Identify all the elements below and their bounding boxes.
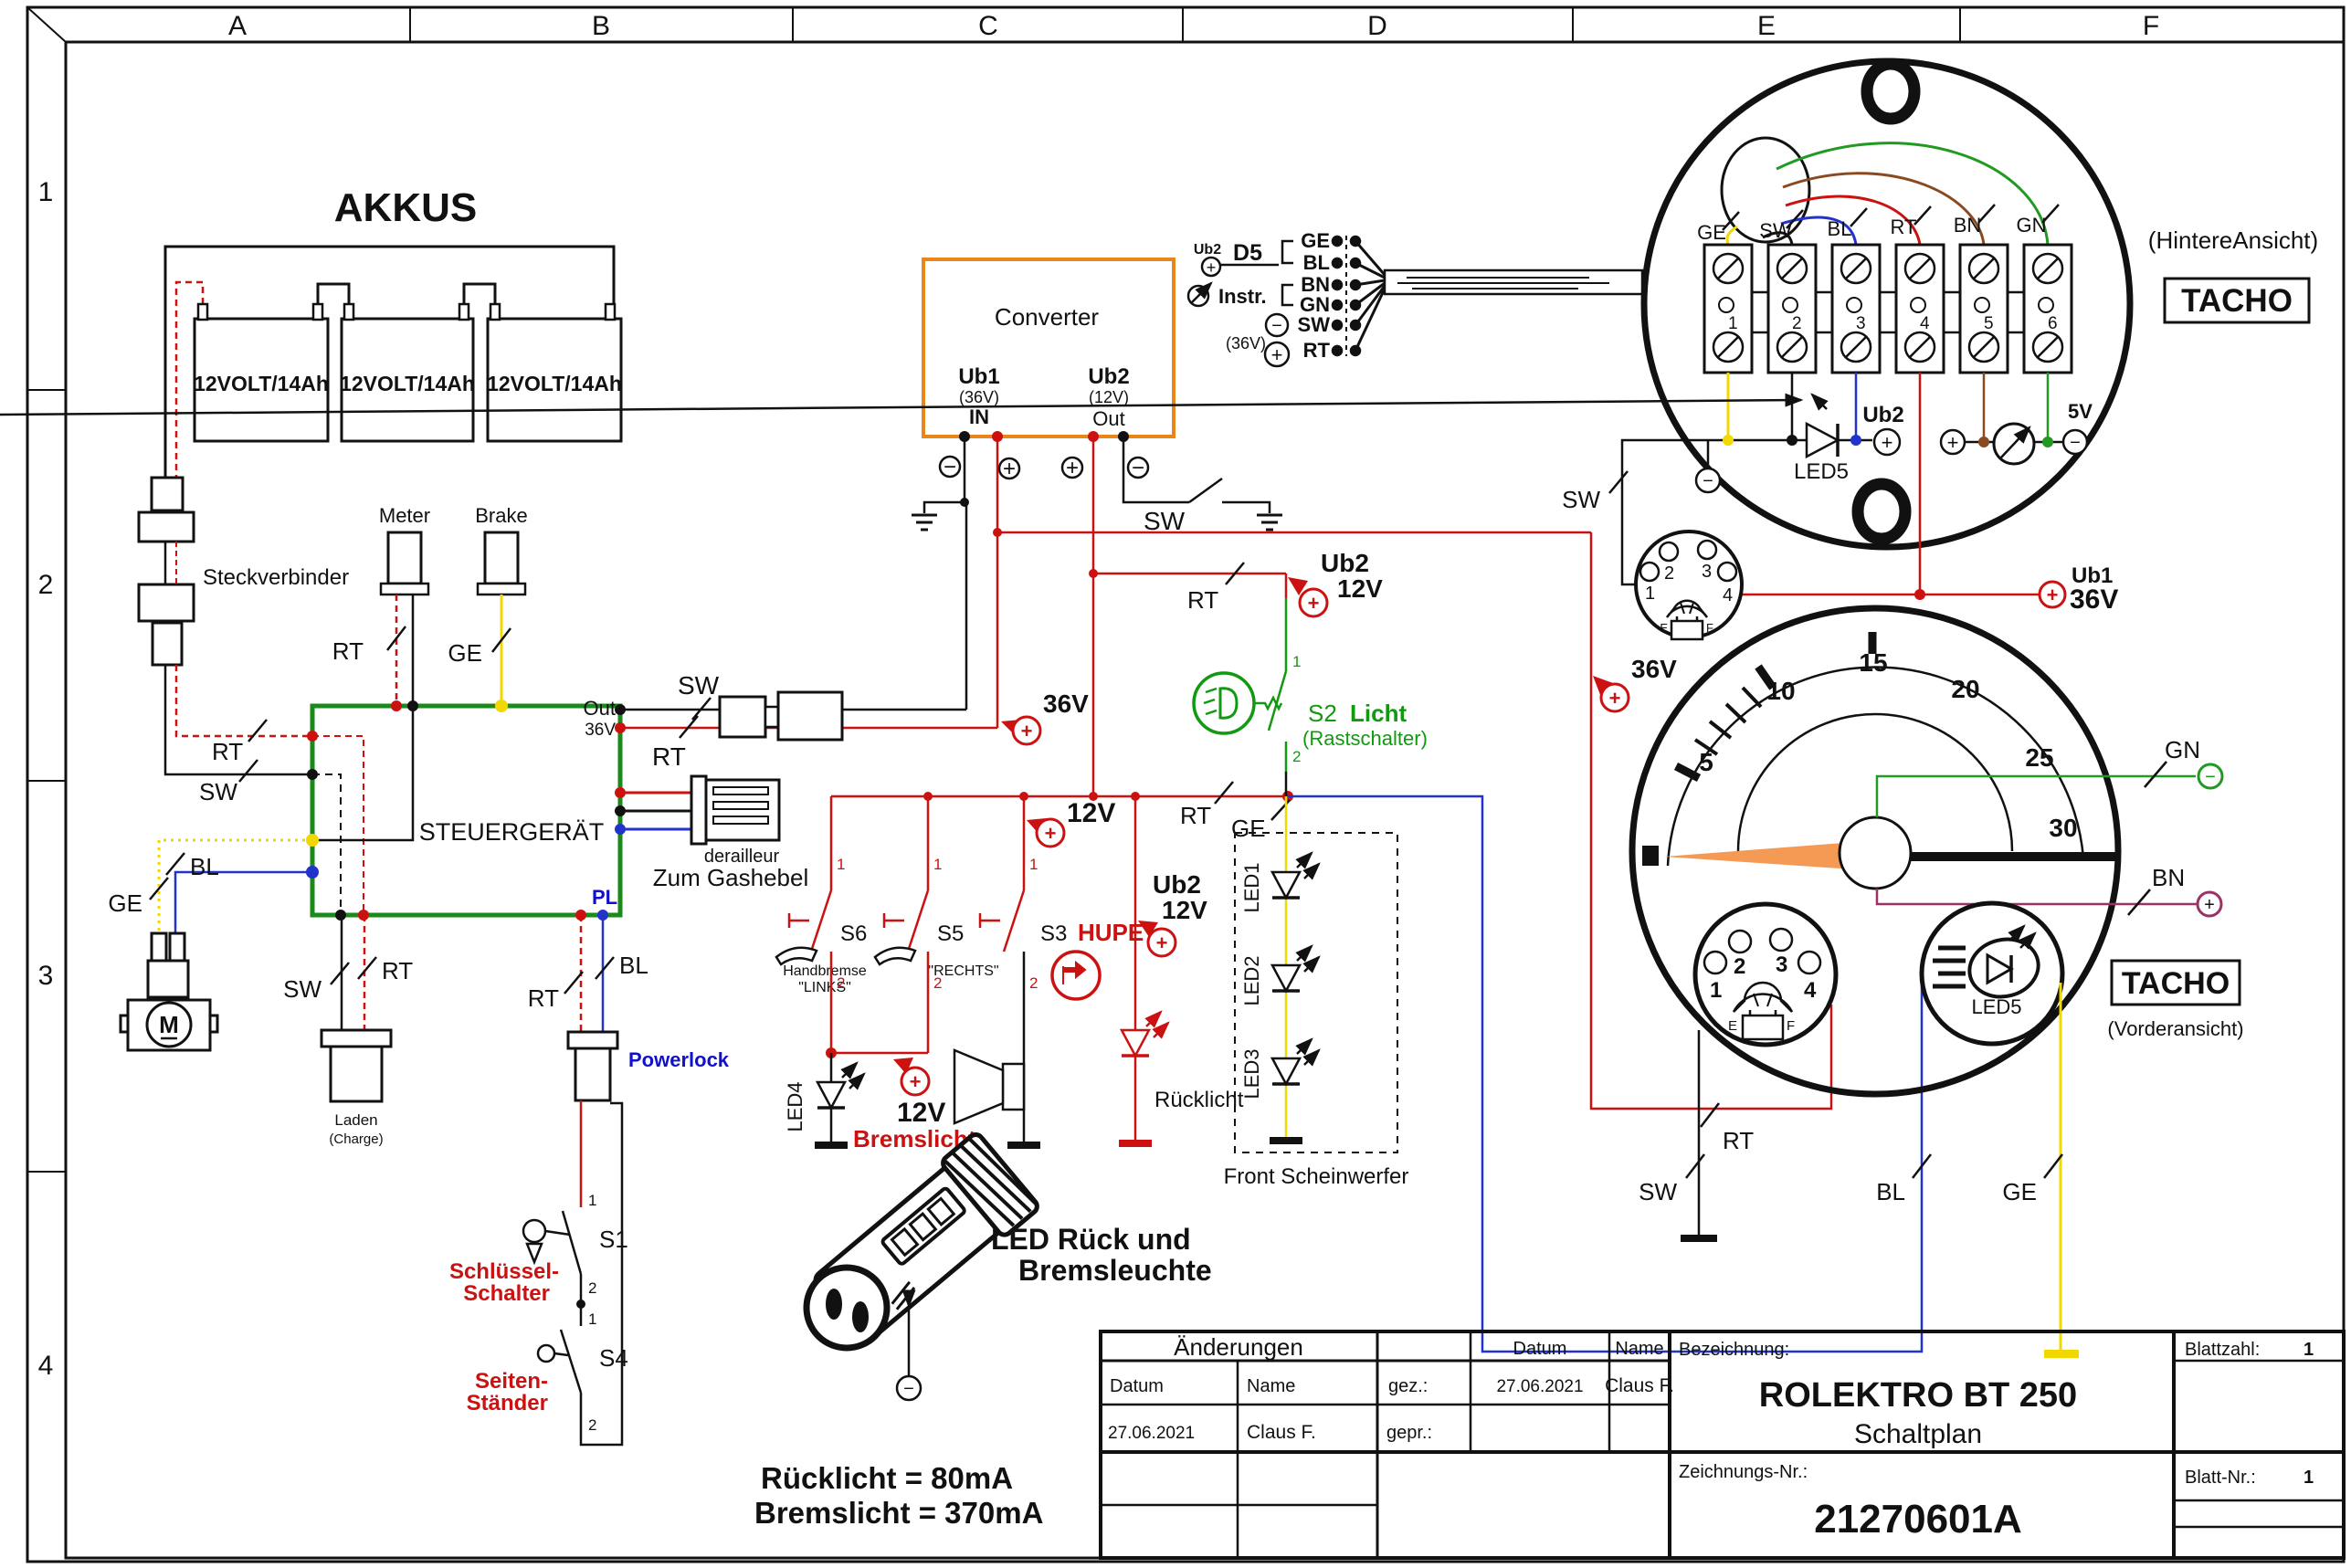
sw-label: SW — [1759, 219, 1792, 242]
bl-label: BL — [1876, 1178, 1905, 1205]
meter-label: Meter — [379, 504, 430, 527]
pin-2: 2 — [837, 974, 845, 992]
powerlock-branch: RT BL Powerlock 1 S1 Schlüssel- Schalter… — [449, 915, 730, 1445]
steckverbinder-label: Steckverbinder — [203, 565, 349, 590]
battery-label: 12VOLT/14Ah — [194, 372, 329, 395]
led4-label: LED4 — [784, 1081, 807, 1131]
led5-front: LED5 — [1922, 903, 2062, 1044]
col-e: E — [1757, 11, 1776, 41]
gn-label: GN — [2017, 214, 2047, 237]
terminal-3: 3 — [1856, 314, 1866, 333]
cable-plug-front: 1 2 3 4 E F — [1695, 904, 1836, 1045]
pin-1: 1 — [1029, 856, 1038, 873]
ge-label: GE — [108, 889, 142, 917]
terminal-blocks: 1 2 3 4 5 6 — [1704, 245, 2072, 373]
bremslicht-ma: Bremslicht = 370mA — [754, 1496, 1043, 1530]
bl-label: BL — [190, 853, 219, 880]
s1-label: S1 — [599, 1226, 628, 1253]
derailleur-connector: derailleur Zum Gashebel — [620, 776, 808, 891]
rt-label: RT — [212, 738, 243, 765]
bl-route — [1288, 796, 1922, 1352]
p36-label: (36V) — [1226, 334, 1266, 353]
speed-10: 10 — [1766, 677, 1795, 705]
s1-name-1: Schlüssel- — [449, 1259, 559, 1284]
battery-label: 12VOLT/14Ah — [340, 372, 475, 395]
svg-text:+: + — [1882, 431, 1893, 454]
pin-1: 1 — [588, 1192, 596, 1209]
in-label: IN — [969, 405, 989, 428]
datum-col: Datum — [1110, 1376, 1164, 1396]
sheet-frame — [27, 7, 2344, 1562]
pin-4: 4 — [1804, 978, 1817, 1003]
pl-label: PL — [592, 886, 617, 909]
terminal-6: 6 — [2048, 314, 2058, 333]
front-view-label: (Vorderansicht) — [2107, 1017, 2243, 1040]
terminal-2: 2 — [1792, 314, 1802, 333]
znr-label: Zeichnungs-Nr.: — [1679, 1462, 1808, 1482]
steuergeraet-label: STEUERGERÄT — [419, 818, 605, 846]
motor-m: M — [159, 1011, 179, 1038]
12v-marker-1: + 12V — [1027, 798, 1115, 847]
sw-label: SW — [678, 671, 720, 700]
pin-2: 2 — [588, 1279, 596, 1297]
pin-3: 3 — [1776, 952, 1787, 977]
sw-label: SW — [1562, 486, 1600, 513]
bn-label: BN — [1954, 214, 1982, 237]
v36-label: 36V — [1043, 689, 1089, 718]
svg-text:+: + — [1947, 431, 1959, 454]
col-a: A — [228, 11, 247, 41]
title-block: Änderungen Datum Name Datum Name gez.: 2… — [1101, 1331, 2344, 1558]
rt-label: RT — [1891, 216, 1917, 238]
ge-label: GE — [1697, 221, 1726, 244]
col-b: B — [592, 11, 610, 41]
brake-label: Brake — [475, 504, 527, 527]
rt-label: RT — [652, 742, 686, 771]
switch-s6: 1 S6 Handbremse "LINKS" 2 — [776, 796, 867, 1053]
ub2-label: Ub2 — [1194, 242, 1221, 258]
ub2-12v-marker-s2: + Ub2 12V — [1288, 549, 1383, 616]
svg-text:−: − — [2070, 433, 2081, 453]
gez-date: 27.06.2021 — [1496, 1377, 1583, 1396]
ub2-12v-marker-rueck: + Ub2 12V — [1138, 870, 1207, 956]
s6-label: S6 — [840, 921, 867, 946]
gepr-label: gepr.: — [1386, 1423, 1432, 1443]
charge-label: (Charge) — [329, 1131, 383, 1147]
tacho-front-view: 5 10 15 20 25 30 − GN + BN 1 2 — [1632, 608, 2244, 1358]
akkus-title: AKKUS — [334, 185, 477, 230]
fuel-f: F — [1706, 621, 1713, 635]
sw-label: SW — [283, 975, 322, 1003]
akkus-section: AKKUS 12VOLT/14Ah 12VOLT/14Ah 12VOLT/14A… — [165, 185, 622, 479]
rear-view-label: (HintereAnsicht) — [2148, 226, 2318, 254]
svg-text:+: + — [1156, 931, 1168, 954]
svg-text:+: + — [1066, 456, 1079, 480]
svg-text:+: + — [1609, 687, 1621, 710]
col-f: F — [2143, 11, 2159, 41]
speed-15: 15 — [1859, 648, 1887, 677]
rt-label: RT — [1187, 586, 1218, 614]
change-date: 27.06.2021 — [1108, 1424, 1195, 1443]
rt-label: RT — [1723, 1127, 1754, 1154]
svg-text:−: − — [2205, 767, 2216, 787]
bezeichnung-label: Bezeichnung: — [1679, 1340, 1789, 1360]
aenderungen-header: Änderungen — [1174, 1333, 1303, 1361]
pin-2: 2 — [588, 1416, 596, 1434]
meter: Meter RT — [332, 504, 430, 706]
fuel-e: E — [1728, 1018, 1737, 1034]
36v-marker-2: + 36V — [1593, 655, 1677, 711]
led2-label: LED2 — [1240, 955, 1263, 1005]
svg-text:+: + — [2204, 895, 2215, 915]
ruecklicht: + Ub2 12V Rücklicht — [1119, 796, 1244, 1147]
svg-text:+: + — [2047, 584, 2059, 606]
row-2: 2 — [38, 570, 54, 600]
ruecklicht-ma: Rücklicht = 80mA — [761, 1461, 1013, 1495]
v5-label: 5V — [2068, 400, 2093, 423]
motor: GE BL M — [108, 840, 312, 1050]
s5-label: S5 — [937, 921, 964, 946]
speed-5: 5 — [1699, 748, 1713, 776]
terminal-1: 1 — [1728, 314, 1738, 333]
ub2-label: Ub2 — [1088, 364, 1129, 389]
steuergeraet: STEUERGERÄT PL Out 36V — [306, 697, 626, 921]
pin-1: 1 — [588, 1310, 596, 1328]
pin-1: 1 — [1645, 584, 1655, 604]
svg-text:−: − — [903, 1379, 914, 1399]
pin-4: 4 — [1723, 585, 1733, 605]
s4-label: S4 — [599, 1344, 628, 1372]
ge-label: GE — [1301, 229, 1330, 252]
licht-label: Licht — [1350, 700, 1407, 727]
terminal-4: 4 — [1920, 314, 1930, 333]
row-1: 1 — [38, 177, 54, 207]
name-col: Name — [1247, 1376, 1295, 1396]
pin-2: 2 — [933, 974, 942, 992]
blattzahl-label: Blattzahl: — [2185, 1340, 2260, 1360]
ge-label: GE — [1231, 815, 1266, 842]
controller-pins — [306, 700, 626, 921]
led3-label: LED3 — [1240, 1048, 1263, 1099]
led-note-2: Bremsleuchte — [1018, 1254, 1212, 1287]
battery-2: 12VOLT/14Ah — [340, 304, 475, 441]
ground-right — [1257, 515, 1282, 530]
doc-subtitle: Schaltplan — [1854, 1419, 1982, 1449]
name-header: Name — [1615, 1339, 1663, 1359]
instr-label: Instr. — [1218, 285, 1267, 308]
36v-marker-1: + 36V — [1001, 689, 1089, 744]
s4-name-1: Seiten- — [475, 1369, 548, 1394]
drawing-number: 21270601A — [1814, 1497, 2022, 1542]
ruecklicht-label: Rücklicht — [1154, 1088, 1244, 1112]
bl-label: BL — [619, 952, 648, 979]
battery-3: 12VOLT/14Ah — [487, 304, 622, 441]
led1: LED1 — [1240, 853, 1319, 913]
svg-text:−: − — [1703, 471, 1713, 491]
ge-label: GE — [2002, 1178, 2037, 1205]
sw-label: SW — [1639, 1178, 1677, 1205]
out-36v: 36V — [585, 721, 616, 740]
rt-label: RT — [1303, 339, 1331, 362]
svg-text:+: + — [1045, 822, 1057, 845]
pin-1: 1 — [933, 856, 942, 873]
svg-text:+: + — [1308, 592, 1320, 615]
ub1-v: (36V) — [959, 388, 999, 406]
row-4: 4 — [38, 1351, 54, 1381]
speed-20: 20 — [1951, 675, 1979, 703]
row-3: 3 — [38, 961, 54, 991]
led-note-1: LED Rück und — [991, 1223, 1191, 1256]
terminal-5: 5 — [1984, 314, 1994, 333]
rt-label: RT — [528, 984, 559, 1012]
svg-text:+: + — [910, 1070, 922, 1093]
s1-name-2: Schalter — [463, 1281, 550, 1306]
v36-label: 36V — [2070, 584, 2118, 615]
ground-left — [912, 515, 937, 530]
speed-25: 25 — [2025, 743, 2053, 772]
col-d: D — [1367, 11, 1387, 41]
bl-label: BL — [1303, 251, 1330, 274]
blattnr-value: 1 — [2304, 1468, 2314, 1488]
blattzahl-value: 1 — [2304, 1340, 2314, 1360]
handbremse-label: Handbremse — [783, 963, 867, 979]
sw-label: SW — [1144, 507, 1186, 535]
datum-header: Datum — [1513, 1339, 1567, 1359]
pin-1: 1 — [1292, 653, 1301, 670]
led5-label: LED5 — [1971, 995, 2021, 1018]
ub1-label: Ub1 — [958, 364, 999, 389]
ub2-label: Ub2 — [1321, 549, 1369, 577]
polarity-row: − + + − — [940, 455, 1148, 481]
pin-2: 2 — [1292, 748, 1301, 765]
svg-text:−: − — [1271, 316, 1282, 336]
out-label: Out — [584, 697, 616, 720]
d5-label: D5 — [1233, 240, 1262, 266]
v12-label: 12V — [897, 1098, 945, 1128]
speed-30: 30 — [2049, 814, 2077, 842]
pin-2: 2 — [1029, 974, 1038, 992]
hupe-label: HUPE — [1078, 919, 1144, 946]
doc-title: ROLEKTRO BT 250 — [1759, 1376, 2077, 1415]
sw-label: SW — [199, 778, 237, 805]
v12-label: 12V — [1162, 896, 1207, 924]
converter-label: Converter — [995, 303, 1099, 331]
rt-label: RT — [332, 637, 364, 665]
svg-text:−: − — [944, 455, 956, 479]
ub2-label: Ub2 — [1153, 870, 1201, 899]
gez-label: gez.: — [1388, 1376, 1428, 1396]
svg-text:+: + — [1021, 720, 1033, 742]
pin-1: 1 — [1710, 978, 1722, 1003]
s3-label: S3 — [1040, 921, 1067, 946]
led1-label: LED1 — [1240, 862, 1263, 912]
svg-text:+: + — [1003, 457, 1016, 481]
ub2-v: (12V) — [1089, 388, 1129, 406]
front-scheinwerfer: LED1 LED2 LED3 Front Scheinwerfer — [1224, 796, 1409, 1189]
led5-label: LED5 — [1794, 459, 1849, 484]
bn-label: BN — [2152, 864, 2185, 891]
out-label: Out — [1092, 407, 1124, 430]
battery-label: 12VOLT/14Ah — [487, 372, 622, 395]
steckverbinder: Steckverbinder RT SW — [139, 478, 349, 805]
bl-label: BL — [1828, 217, 1852, 240]
laden-label: Laden — [334, 1111, 377, 1129]
powerlock-label: Powerlock — [628, 1048, 730, 1071]
pin-3: 3 — [1702, 562, 1712, 582]
cable-plug-rear: 1 2 3 4 E F — [1636, 531, 1742, 639]
v36-label: 36V — [1631, 655, 1677, 683]
12v-marker-2: + 12V — [893, 1058, 945, 1128]
blattnr-label: Blatt-Nr.: — [2185, 1468, 2256, 1488]
ub2-label: Ub2 — [1862, 403, 1903, 427]
col-c: C — [978, 11, 998, 41]
front-scheinwerfer-label: Front Scheinwerfer — [1224, 1164, 1409, 1189]
v12-label: 12V — [1337, 574, 1383, 603]
gn-label: GN — [2165, 736, 2200, 763]
ge-label: GE — [448, 639, 482, 667]
sw-label: SW — [1298, 313, 1331, 336]
svg-text:+: + — [1207, 258, 1217, 277]
gez-name: Claus F. — [1605, 1375, 1674, 1396]
rt-label: RT — [1180, 802, 1211, 829]
gashebel-label: Zum Gashebel — [653, 864, 809, 891]
s2-label: S2 — [1308, 700, 1337, 727]
pin-1: 1 — [837, 856, 845, 873]
fuel-f: F — [1787, 1018, 1795, 1034]
brake: Brake GE — [448, 504, 527, 706]
svg-text:−: − — [1132, 456, 1144, 480]
s4-name-2: Ständer — [467, 1391, 548, 1415]
rt-label: RT — [382, 957, 413, 984]
svg-text:+: + — [1271, 343, 1283, 366]
pin-2: 2 — [1734, 954, 1745, 979]
rast-label: (Rastschalter) — [1302, 727, 1428, 750]
d5-instr-section: Ub2 + D5 Instr. (36V) − + GE BL BN GN SW… — [1188, 229, 1642, 366]
pin-2: 2 — [1664, 563, 1674, 584]
fuel-e: E — [1660, 621, 1668, 635]
led2: LED2 — [1240, 946, 1319, 1006]
change-name: Claus F. — [1247, 1422, 1316, 1443]
v12-label: 12V — [1067, 798, 1115, 828]
schaltplan-sheet: A B C D E F 1 2 3 4 AKKUS 12VOLT/14Ah 12… — [0, 0, 2351, 1568]
battery-1: 12VOLT/14Ah — [194, 304, 329, 441]
led3: LED3 — [1240, 1039, 1319, 1100]
tacho-label: TACHO — [2122, 966, 2230, 1001]
led4-bremslicht: + 12V LED4 Bremslicht — [784, 1047, 976, 1152]
laden-connector: SW RT Laden (Charge) — [283, 915, 413, 1147]
power-rails: SW RT + 36V + 36V RT + 1 — [620, 437, 1831, 1109]
tacho-label: TACHO — [2181, 283, 2293, 319]
